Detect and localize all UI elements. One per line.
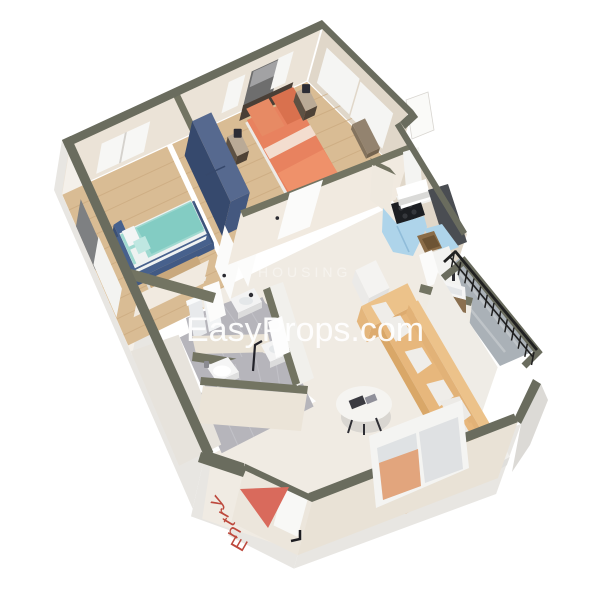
svg-text:EasyProps.com: EasyProps.com [186,311,424,349]
svg-text:HOUSING: HOUSING [258,264,351,280]
